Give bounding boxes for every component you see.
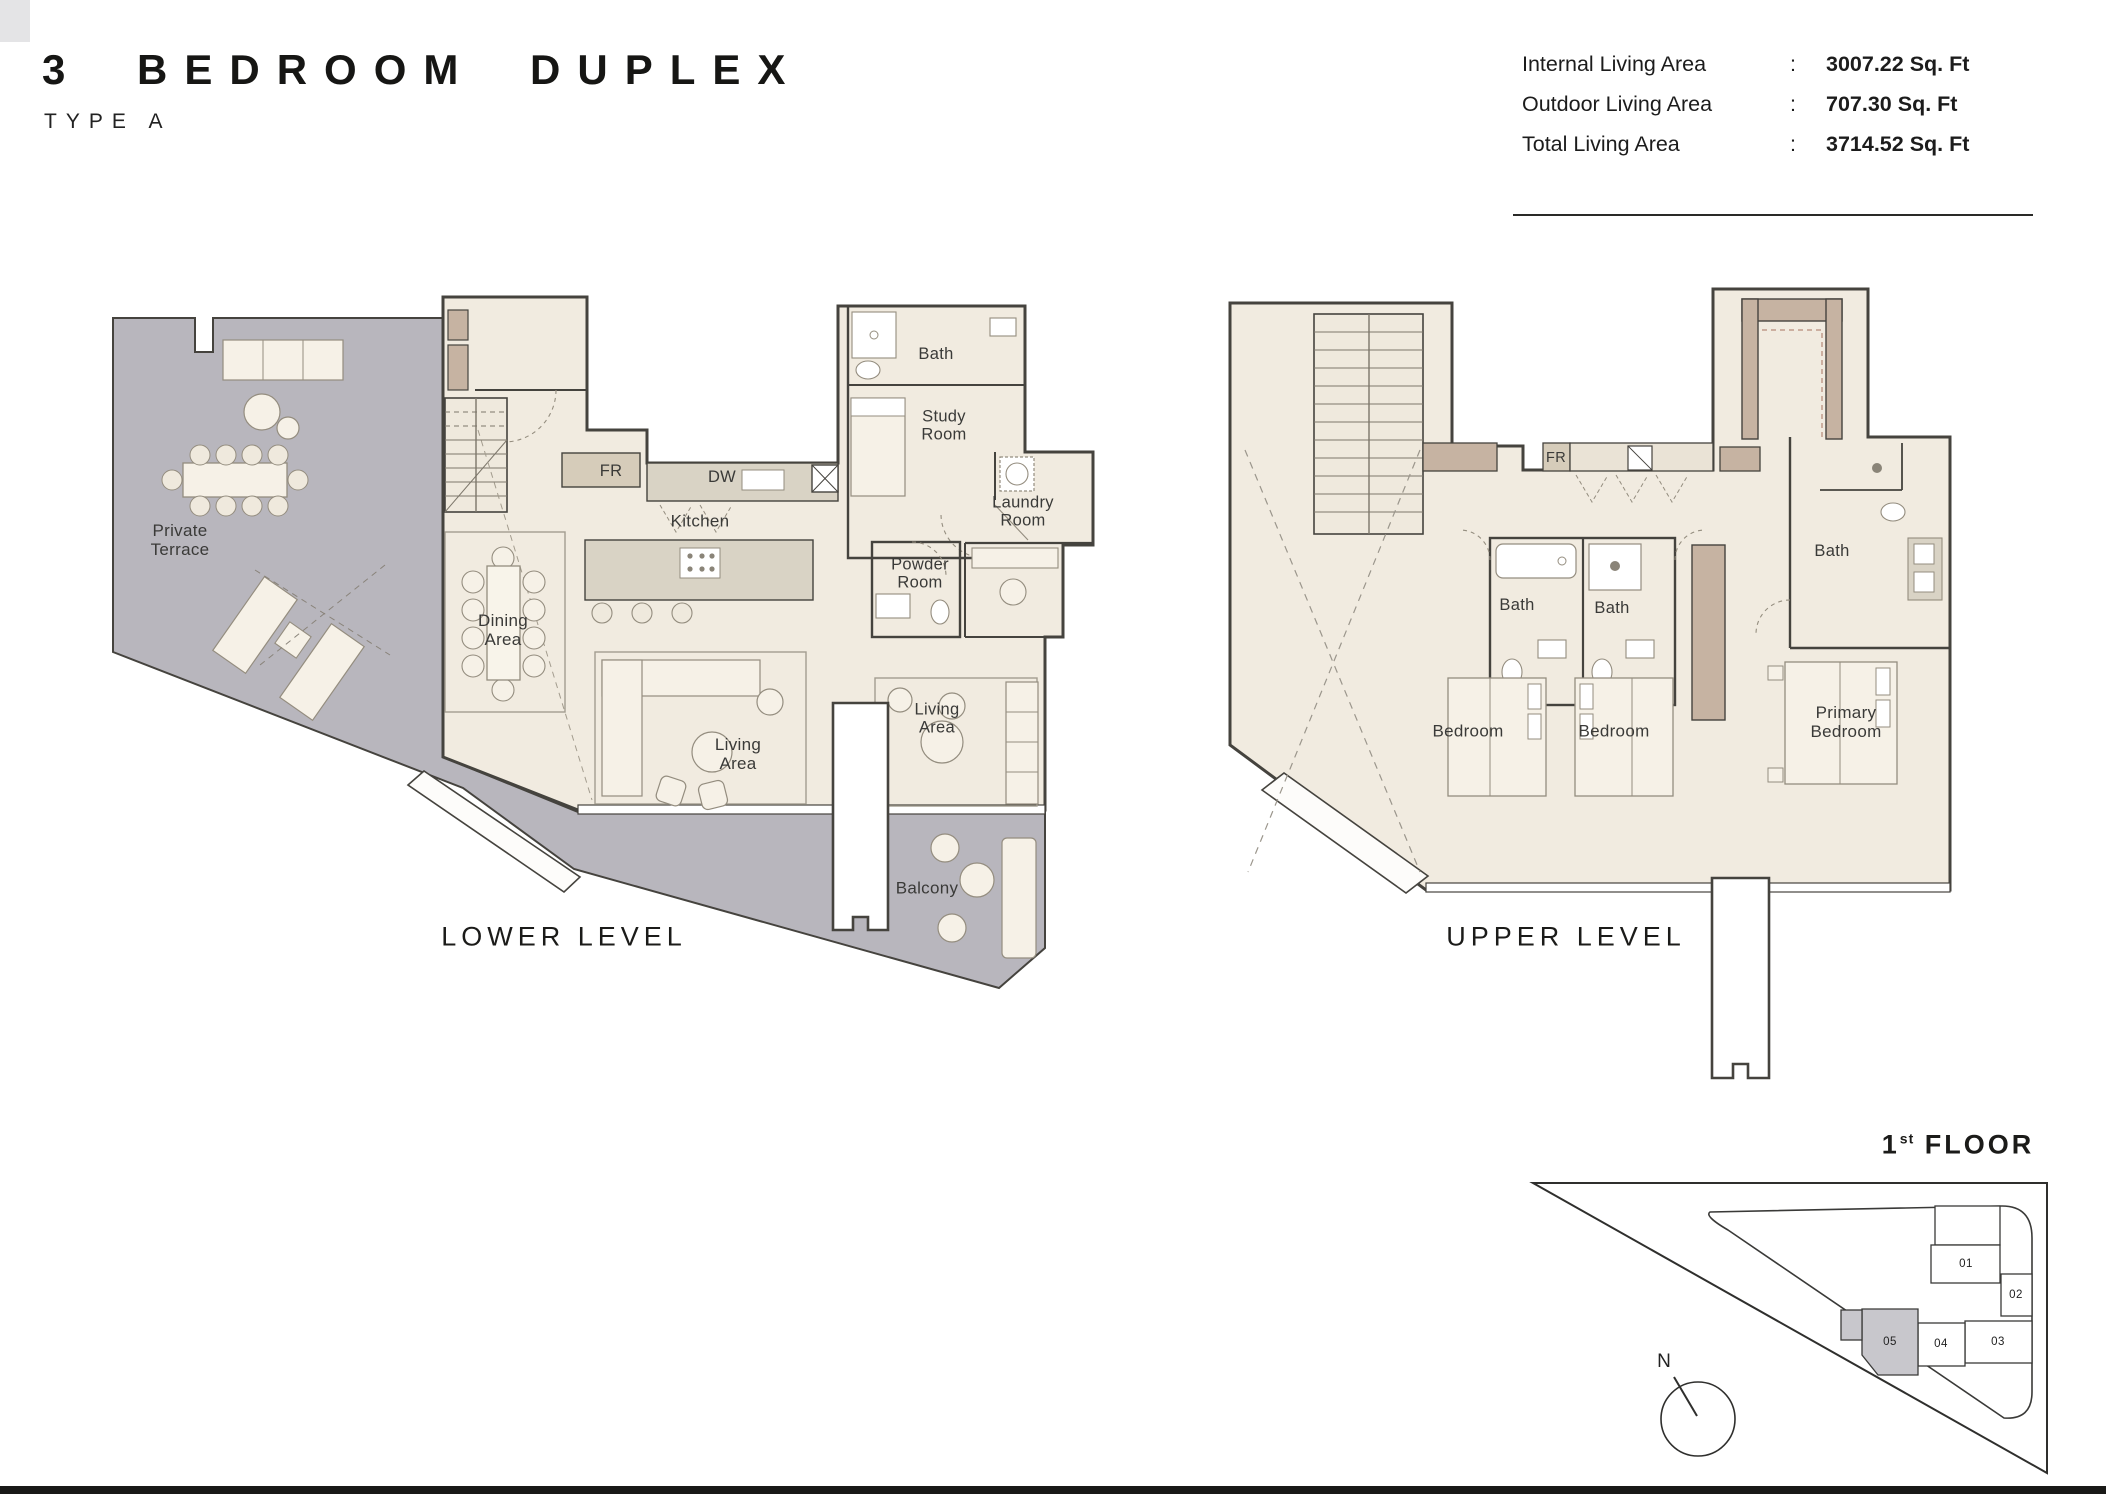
wardrobe-band [1692,545,1725,720]
floorplan-page: 3 BEDROOM DUPLEX TYPE A Internal Living … [0,0,2106,1494]
room-label-bedroom-left: Bedroom [1432,721,1503,740]
closet-cabinet [1720,447,1760,471]
sink [1538,640,1566,658]
room-label-dw: DW [708,468,736,486]
closet-cabinet [1423,443,1497,471]
vanity [876,594,910,618]
unit-label-01: 01 [1959,1258,1973,1270]
room-label-living-area-second: Living Area [915,701,960,738]
building-core [1935,1206,2000,1245]
plans-graphic [0,0,2106,1494]
room-label-fr-upper: FR [1546,450,1566,466]
entry-closet [448,310,468,340]
room-label-bath-mid: Bath [1594,599,1629,617]
room-label-primary-bedroom: Primary Bedroom [1810,703,1881,741]
shower-head [1872,463,1882,473]
room-label-powder-room: Powder Room [891,556,949,593]
room-label-dining-area: Dining Area [478,611,528,649]
toilet [856,361,880,379]
toilet [931,600,949,624]
room-label-study-room: Study Room [921,408,966,445]
staircase-upper [1314,314,1423,534]
unit-label-04: 04 [1934,1338,1948,1350]
window-band [1426,883,1950,892]
bar-stool [632,603,652,623]
bar-stool [592,603,612,623]
desk [972,548,1058,568]
ordinal-suffix: st [1900,1131,1914,1147]
unit-05-wing [1841,1310,1862,1340]
site-plan [1533,1183,2047,1473]
room-label-kitchen: Kitchen [671,511,730,530]
entry-closet [448,345,468,390]
lower-level-caption: LOWER LEVEL [441,922,687,953]
north-compass [1661,1377,1735,1456]
room-label-living-area-main: Living Area [715,735,761,773]
bar-stool [672,603,692,623]
sink [990,318,1016,336]
room-label-bath-primary: Bath [1814,542,1849,560]
sink [1626,640,1654,658]
core-shaft [833,703,888,930]
washer [1000,457,1034,491]
unit-label-03: 03 [1991,1336,2005,1348]
kitchen-sink [742,470,784,490]
room-label-bedroom-mid: Bedroom [1578,721,1649,740]
room-label-bath-left: Bath [1499,596,1534,614]
room-label-bath-lower: Bath [918,345,953,363]
desk-chair [1000,579,1026,605]
bottom-border-bar [0,1486,2106,1494]
north-indicator-label: N [1657,1351,1671,1373]
room-label-fr: FR [600,462,623,480]
core-shaft-upper [1712,878,1769,1078]
stove [680,548,720,578]
unit-label-02: 02 [2009,1289,2023,1301]
room-label-laundry-room: Laundry Room [992,494,1054,531]
sink [1881,503,1905,521]
bathtub [1496,544,1576,578]
room-label-private-terrace: Private Terrace [151,521,210,559]
room-label-balcony: Balcony [896,878,959,897]
upper-level-caption: UPPER LEVEL [1446,922,1686,953]
site-plan-title: 1st FLOOR [1882,1130,2035,1161]
shaft-box [812,465,838,492]
upper-level-plan [1230,289,1950,1078]
shower [852,312,896,358]
unit-label-05: 05 [1883,1336,1897,1348]
